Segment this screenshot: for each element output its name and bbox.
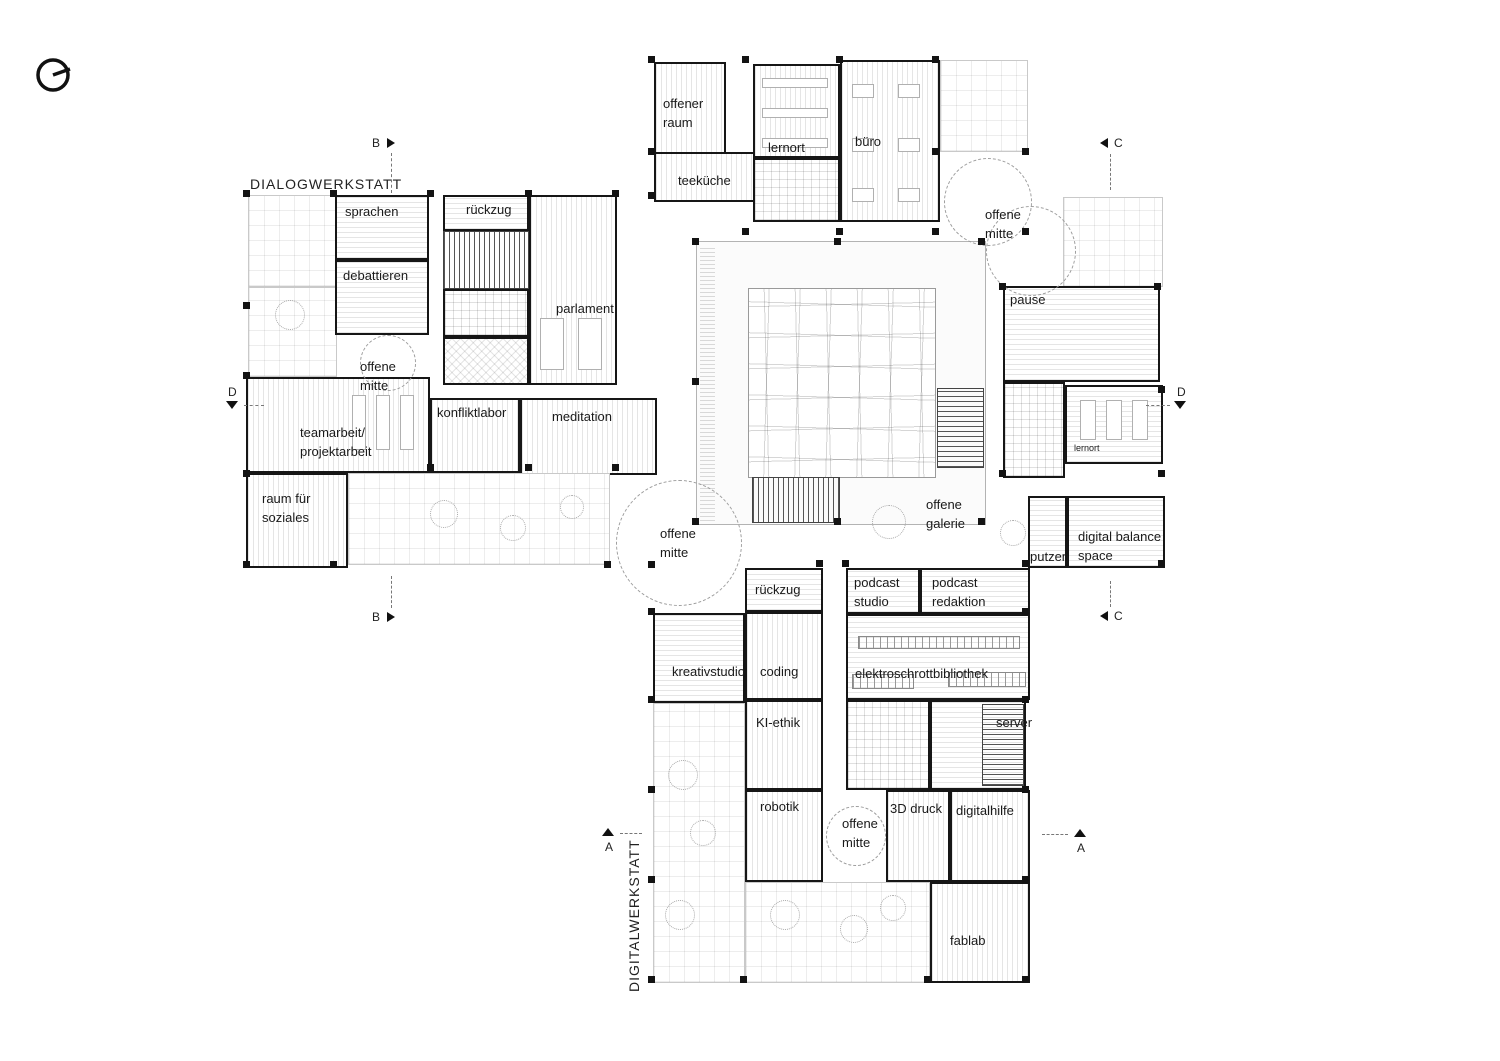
room-label-buero: büro [855,133,881,152]
plant [880,895,906,921]
room-label-offene-galerie: offene galerie [926,496,965,534]
desk [1132,400,1148,440]
section-arrow-icon [1074,829,1086,837]
room-label-robotik: robotik [760,798,799,817]
plant [1000,520,1026,546]
room-label-3d-druck: 3D druck [890,800,942,819]
room-label-teekueche: teeküche [678,172,731,191]
room-label-raum-soziales: raum für soziales [262,490,310,528]
desk [898,188,920,202]
stair-top-left [443,231,529,289]
section-arrow-icon [1100,138,1108,148]
room-label-ki-ethik: KI-ethik [756,714,800,733]
plant [500,515,526,541]
table [540,318,564,370]
courtyard [745,882,930,983]
terrace-top-right [940,60,1028,152]
plant [560,495,584,519]
room-label-offener-raum: offener raum [663,95,703,133]
room-label-pause: pause [1010,291,1045,310]
section-arrow-icon [602,828,614,836]
room-wc-top-mid [753,158,840,222]
room-label-digitalhilfe: digitalhilfe [956,802,1014,821]
room-label-rueckzug-top: rückzug [466,201,512,220]
room-label-elektro: elektroschrottbibliothek [855,665,988,684]
room-label-offene-mitte-top: offene mitte [985,206,1021,244]
plant [840,915,868,943]
room-wc-right [1003,382,1065,478]
floor-plan: DIALOGWERKSTATT DIGITALWERKSTATT [0,0,1500,1061]
room-label-parlament: parlament [556,300,614,319]
section-arrow-icon [226,401,238,409]
desk [1106,400,1122,440]
table [376,395,390,450]
desk [898,138,920,152]
garden-strip [348,473,610,565]
section-arrow-icon [1174,401,1186,409]
stair-atrium-right [937,388,984,468]
plant [275,300,305,330]
room-label-server: server [996,714,1032,733]
room-label-debattieren: debattieren [343,267,408,286]
zone-title-dialogwerkstatt: DIALOGWERKSTATT [250,176,402,192]
plant [770,900,800,930]
structural-columns [0,0,7,7]
section-arrow-icon [387,138,395,148]
plant [430,500,458,528]
section-arrow-icon [1100,611,1108,621]
room-label-kreativstudio: kreativstudio [672,663,745,682]
table [578,318,602,370]
room-label-putzen: putzen [1030,548,1069,567]
room-label-digital-balance: digital balance space [1078,528,1161,566]
room-label-offene-mitte-center: offene mitte [660,525,696,563]
north-arrow-icon [33,54,75,96]
terrace-top-left [248,195,337,287]
section-arrow-icon [387,612,395,622]
desk [852,188,874,202]
room-label-coding: coding [760,663,798,682]
terrace-upper-right [1063,197,1163,287]
room-label-konfliktlabor: konfliktlabor [437,404,506,423]
desk [852,84,874,98]
room-cabins-left [443,337,529,385]
room-label-lernort-top: lernort [768,139,805,158]
room-label-teamarbeit: teamarbeit/ projektarbeit [300,424,372,462]
room-label-lernort-right: lernort [1074,442,1100,455]
room-label-fablab: fablab [950,932,985,951]
room-label-rueckzug-bottom: rückzug [755,581,801,600]
desk [1080,400,1096,440]
plant [665,900,695,930]
room-wc-bottom [846,700,930,790]
room-coding [745,612,823,700]
room-label-sprachen: sprachen [345,203,398,222]
table [762,78,828,88]
room-label-offene-mitte-bottom: offene mitte [842,815,878,853]
atrium-gallery-band [700,245,715,521]
table [400,395,414,450]
plant [690,820,716,846]
plant [872,505,906,539]
room-label-offene-mitte-left: offene mitte [360,358,396,396]
atrium-net-roof [748,288,936,478]
room-wc-top-left [443,289,529,337]
room-kreativstudio [653,613,745,703]
zone-title-digitalwerkstatt: DIGITALWERKSTATT [626,852,642,992]
shelf-row [858,636,1020,649]
room-label-meditation: meditation [552,408,612,427]
plant [668,760,698,790]
room-label-podcast-studio: podcast studio [854,574,900,612]
room-label-podcast-redaktion: podcast redaktion [932,574,985,612]
desk [898,84,920,98]
table [762,108,828,118]
stair-atrium-bottom [752,477,840,523]
